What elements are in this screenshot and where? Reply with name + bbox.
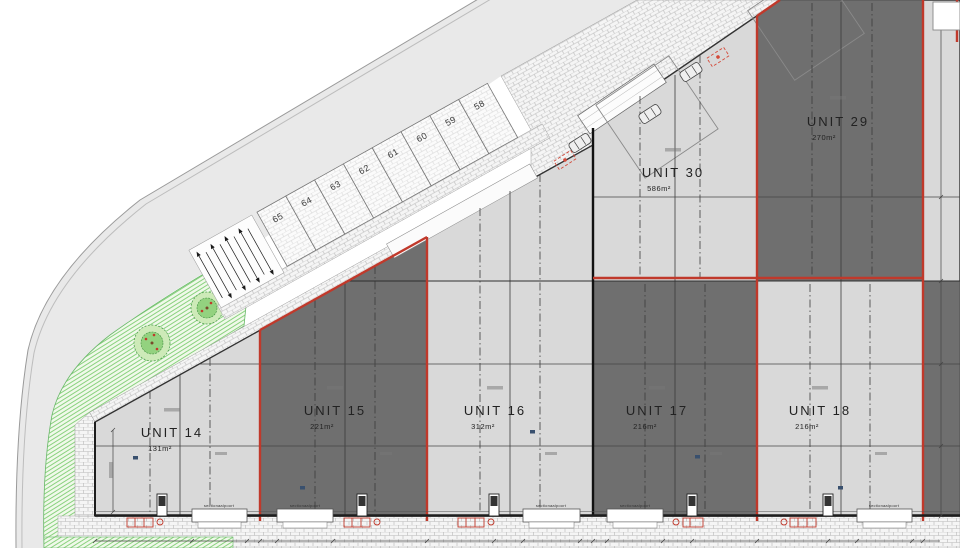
personnel-door-icon xyxy=(489,494,499,516)
unit-16-area: 312m² xyxy=(471,422,495,431)
personnel-door-icon xyxy=(357,494,367,516)
sectional-door-opening xyxy=(857,509,912,522)
landscape-strip-bottom xyxy=(44,537,233,548)
sectional-door-label: sectionaalpoort xyxy=(290,503,321,508)
unit-18-label: UNIT 18 xyxy=(789,403,851,418)
unit-18-area: 216m² xyxy=(795,422,819,431)
unit-17-area: 216m² xyxy=(633,422,657,431)
door-threshold xyxy=(613,522,657,528)
sectional-door-opening xyxy=(607,509,663,522)
adjacent-building-outline xyxy=(933,2,960,30)
walkway-left-band xyxy=(75,412,95,516)
sectional-door-opening xyxy=(192,509,247,522)
unit-19-floor-partial xyxy=(923,281,960,516)
unit-15-label: UNIT 15 xyxy=(304,403,366,418)
sectional-door-label: sectionaalpoort xyxy=(869,503,900,508)
sectional-door-opening xyxy=(523,509,580,522)
door-threshold xyxy=(283,522,327,528)
unit-14-label: UNIT 14 xyxy=(141,425,203,440)
unit-17-label: UNIT 17 xyxy=(626,403,688,418)
sectional-door-label: sectionaalpoort xyxy=(536,503,567,508)
door-threshold xyxy=(198,522,241,528)
unit-30-label: UNIT 30 xyxy=(642,165,704,180)
unit-15-area: 221m² xyxy=(310,422,334,431)
sectional-door-opening xyxy=(277,509,333,522)
personnel-door-icon xyxy=(157,494,167,516)
tree-icon xyxy=(134,325,170,361)
unit-29-floor xyxy=(757,0,923,281)
unit-16-label: UNIT 16 xyxy=(464,403,526,418)
unit-29-area: 270m² xyxy=(812,133,836,142)
unit-14-area: 131m² xyxy=(148,444,172,453)
sectional-door-label: sectionaalpoort xyxy=(204,503,235,508)
personnel-door-icon xyxy=(687,494,697,516)
door-threshold xyxy=(863,522,906,528)
unit-29-label: UNIT 29 xyxy=(807,114,869,129)
site-plan-svg: 65 64 63 62 61 60 59 58 xyxy=(0,0,960,548)
personnel-door-icon xyxy=(823,494,833,516)
sectional-door-label: sectionaalpoort xyxy=(620,503,651,508)
unit-30-area: 586m² xyxy=(647,184,671,193)
door-threshold xyxy=(529,522,574,528)
site-plan: 65 64 63 62 61 60 59 58 xyxy=(0,0,960,548)
